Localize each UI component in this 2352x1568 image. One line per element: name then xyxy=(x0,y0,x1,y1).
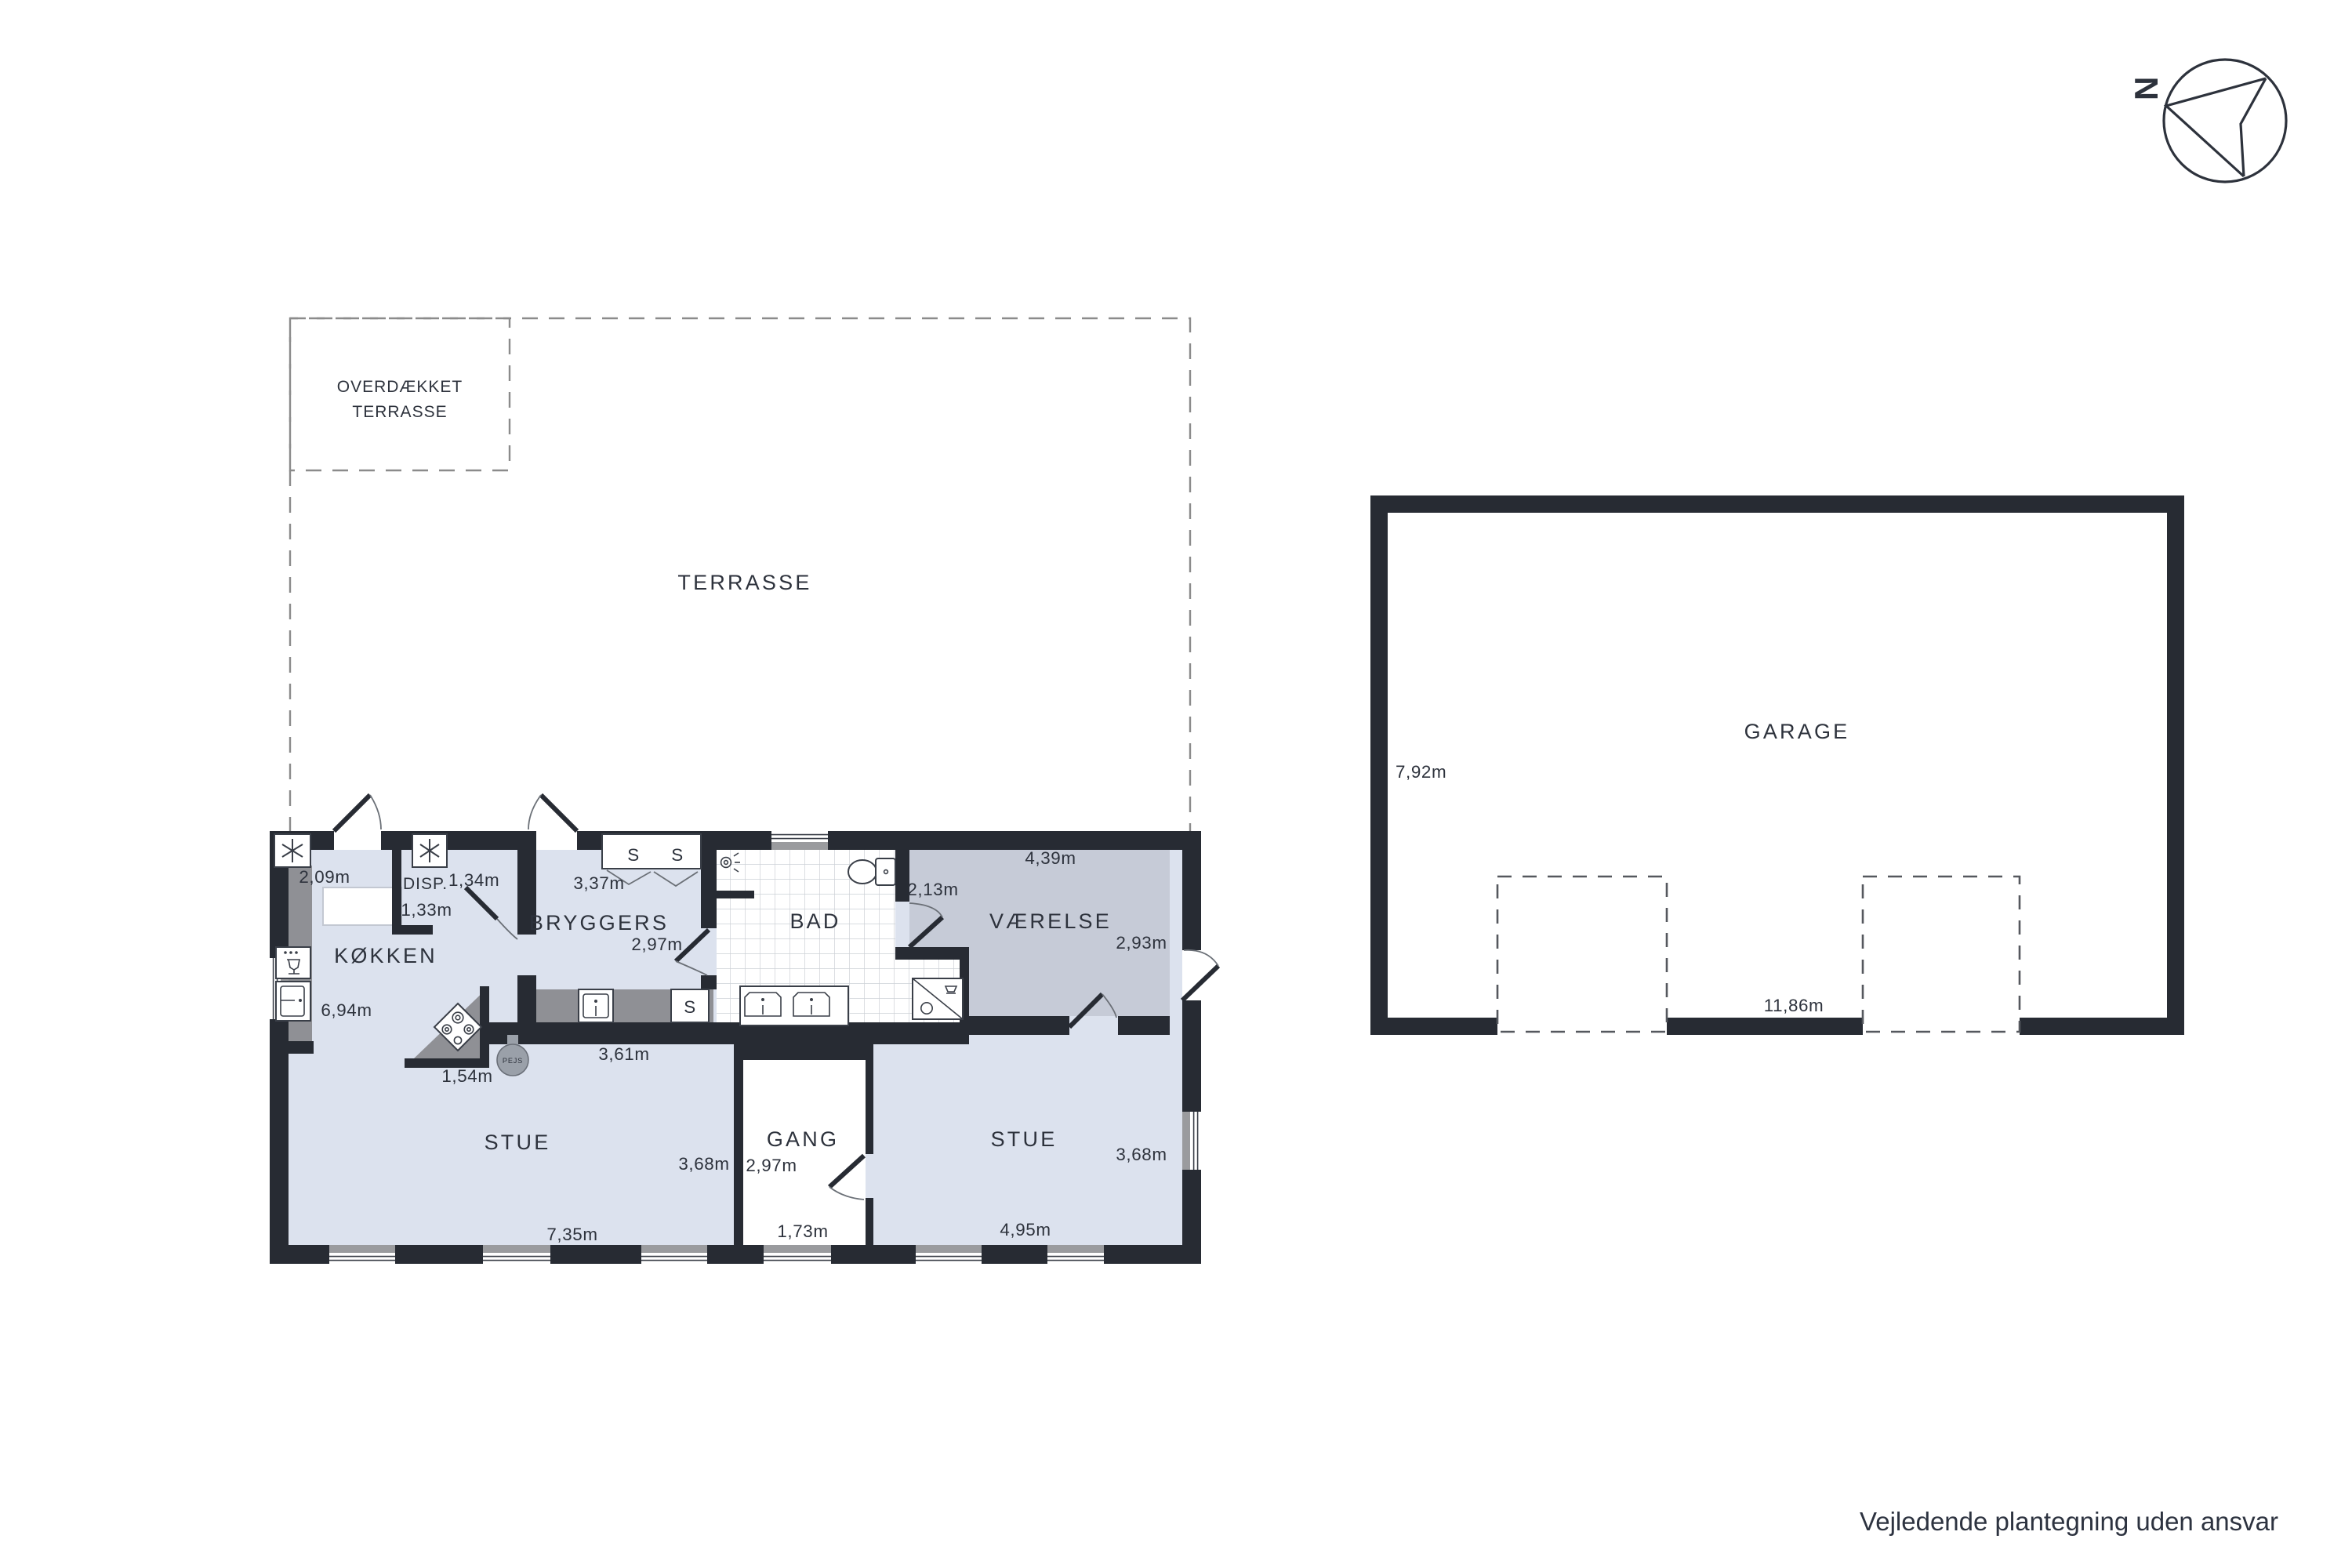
floorplan-page: OVERDÆKKET TERRASSE TERRASSE xyxy=(0,0,2352,1568)
wall-bryggers-bad-a xyxy=(701,831,717,928)
terrace-label: TERRASSE xyxy=(677,571,811,594)
koekken-dim-top: 2,09m xyxy=(299,867,350,887)
floorplan-svg: OVERDÆKKET TERRASSE TERRASSE xyxy=(0,0,2352,1568)
front-door xyxy=(764,1245,831,1264)
stue-left-dim-bottom: 7,35m xyxy=(546,1225,597,1244)
window-bottom-1 xyxy=(329,1245,395,1264)
freezer-icon xyxy=(274,834,310,867)
compass-north-label: N xyxy=(2128,77,2165,100)
wall-kitchen-disp xyxy=(392,831,401,935)
bad-label: BAD xyxy=(789,909,840,933)
garage-door-right xyxy=(1863,877,2020,1032)
window-right xyxy=(1182,1112,1201,1170)
wall-gang-right-a xyxy=(866,1060,873,1154)
compass-needle-inner xyxy=(2241,78,2266,176)
wall-gang-top xyxy=(734,1022,873,1060)
kitchen-exterior-door xyxy=(334,795,381,831)
stue-right-dim-bottom: 4,95m xyxy=(1000,1220,1051,1240)
gang-dim-bottom: 1,73m xyxy=(777,1221,828,1241)
gang-label: GANG xyxy=(767,1127,839,1151)
stue-right-label: STUE xyxy=(991,1127,1058,1151)
window-bottom-5 xyxy=(1047,1245,1104,1264)
garage-label: GARAGE xyxy=(1744,720,1850,743)
wall-gang-left xyxy=(734,1060,743,1245)
stue-right-dim-right: 3,68m xyxy=(1116,1145,1167,1164)
window-bottom-2 xyxy=(483,1245,550,1264)
toilet-icon xyxy=(848,858,895,885)
bad-dim-right: 2,13m xyxy=(907,880,958,899)
garage-door-left xyxy=(1497,877,1667,1032)
window-bottom-3 xyxy=(641,1245,707,1264)
disp-dim-right: 1,34m xyxy=(448,870,499,890)
koekken-label: KØKKEN xyxy=(334,944,437,967)
dishwasher-icon xyxy=(276,947,310,978)
gang-dim-left: 2,97m xyxy=(746,1156,797,1175)
covered-terrace-label-2: TERRASSE xyxy=(352,403,447,421)
vaerelse-label: VÆRELSE xyxy=(989,909,1112,933)
stue-left-label: STUE xyxy=(485,1131,551,1154)
wall-bryggers-bad-b xyxy=(701,975,717,989)
garage-dim-bottom: 11,86m xyxy=(1764,996,1824,1015)
disp-freezer-icon xyxy=(412,834,447,867)
stue-left-dim-right: 3,68m xyxy=(678,1154,729,1174)
wall-bad-notch-h xyxy=(895,947,969,960)
disp-label: DISP. xyxy=(403,875,448,893)
disp-dim-bottom: 1,33m xyxy=(401,900,452,920)
wall-gang-right-b xyxy=(866,1198,873,1245)
bryggers-dim-right: 2,97m xyxy=(631,935,682,954)
kitchen-island xyxy=(323,887,401,925)
vaerelse-dim-right: 2,93m xyxy=(1116,933,1167,953)
closet-s2-label: S xyxy=(671,845,684,865)
covered-terrace-label-1: OVERDÆKKET xyxy=(337,378,463,396)
bryggers-dim-top: 3,37m xyxy=(573,873,624,893)
closet-s1-label: S xyxy=(627,845,640,865)
bryggers-label: BRYGGERS xyxy=(529,911,669,935)
wall-disp-bryggers-b xyxy=(517,975,536,1022)
compass: N xyxy=(2128,60,2286,182)
stue-left-dim-counter: 3,61m xyxy=(598,1044,649,1064)
window-bottom-4 xyxy=(916,1245,982,1264)
cabinet-s-label: S xyxy=(684,997,696,1017)
wall-disp-stub xyxy=(392,925,433,935)
wall-vaerelse-bottom-b xyxy=(1118,1016,1170,1035)
vaerelse-exterior-door xyxy=(1182,950,1218,1000)
wall-toilet-stub xyxy=(717,891,754,898)
fireplace-label: PEJS xyxy=(503,1057,523,1065)
window-top xyxy=(771,831,828,850)
shower-icon xyxy=(913,978,963,1019)
floor-gang xyxy=(743,1060,866,1245)
terrace-outline: OVERDÆKKET TERRASSE TERRASSE xyxy=(290,318,1190,833)
bryggers-exterior-door xyxy=(528,795,577,831)
wall-vaerelse-bottom-a xyxy=(960,1016,1069,1035)
vaerelse-dim-top: 4,39m xyxy=(1025,848,1076,868)
wall-stue-divider xyxy=(480,1022,969,1044)
disclaimer-text: Vejledende plantegning uden ansvar xyxy=(1860,1507,2278,1536)
garage: GARAGE 7,92m 11,86m xyxy=(1370,495,2184,1035)
kitchen-sink-icon xyxy=(276,982,310,1021)
vanity-icon xyxy=(740,986,848,1025)
koekken-dim-left: 6,94m xyxy=(321,1000,372,1020)
corridor-s-cabinet: S xyxy=(671,989,709,1022)
corridor-sink-icon xyxy=(579,989,613,1022)
garage-dim-left: 7,92m xyxy=(1396,762,1446,782)
stue-left-dim-stove: 1,54m xyxy=(441,1066,492,1086)
